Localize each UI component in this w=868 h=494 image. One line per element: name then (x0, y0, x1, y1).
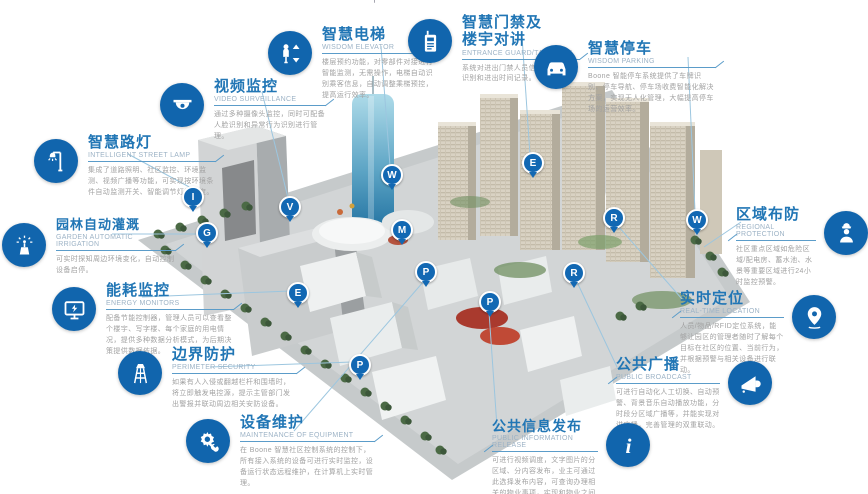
callout-subtitle: PERIMETER SECURITY (172, 364, 297, 371)
street-lamp-icon (34, 139, 78, 183)
callout-underline (106, 309, 234, 310)
callout-subtitle: PUBLIC INFORMATION RELEASE (492, 435, 598, 449)
callout-equipment-maintenance: 设备维护 MAINTENANCE OF EQUIPMENT 在 Boone 智慧… (186, 414, 375, 490)
callout-description: 可实时探知周边环境变化，自动控制设备启停。 (56, 255, 176, 277)
callout-regional-protection: 区域布防 REGIONAL PROTECTION 社区重点区域如危险区域/配电房… (736, 206, 868, 289)
callout-title: 智慧停车 (588, 40, 716, 57)
callout-title: 公共信息发布 (492, 418, 598, 434)
energy-monitor-icon (52, 287, 96, 331)
callout-subtitle: WISDOM PARKING (588, 58, 716, 65)
callout-title: 智慧路灯 (88, 134, 216, 151)
intercom-icon (408, 19, 452, 63)
map-marker-e-8: E (522, 152, 544, 174)
callout-underline (736, 240, 816, 241)
callout-underline (214, 105, 326, 106)
location-pin-icon (792, 295, 836, 339)
callout-title: 实时定位 (680, 290, 784, 307)
callout-description: 可进行视频调度，文字图片的分区域、分内容发布，业主可通过此选择发布内容，可查询办… (492, 456, 598, 494)
callout-subtitle: INTELLIGENT STREET LAMP (88, 152, 216, 159)
map-marker-w-4: W (381, 164, 403, 186)
callout-public-info-release: 公共信息发布 PUBLIC INFORMATION RELEASE 可进行视频调… (492, 418, 650, 494)
callout-subtitle: MAINTENANCE OF EQUIPMENT (240, 432, 375, 439)
map-marker-i-1: I (182, 186, 204, 208)
callout-underline (680, 317, 784, 318)
map-marker-r-9: R (603, 207, 625, 229)
car-icon (534, 45, 578, 89)
callout-title: 区域布防 (736, 206, 816, 223)
callout-description: 社区重点区域如危险区域/配电房、蓄水池、水景等重要区域进行24小时监控预警。 (736, 245, 816, 288)
map-marker-v-3: V (279, 196, 301, 218)
callout-underline (616, 383, 720, 384)
callout-title: 公共广播 (616, 356, 720, 373)
callout-underline (492, 451, 598, 452)
callout-title: 视频监控 (214, 78, 326, 95)
callout-title: 园林自动灌溉 (56, 218, 176, 233)
callout-perimeter-security: 边界防护 PERIMETER SECURITY 如果有人入侵或翻越栏杆和围墙时，… (118, 346, 297, 411)
map-marker-g-2: G (196, 222, 218, 244)
megaphone-icon (728, 361, 772, 405)
callout-underline (56, 250, 176, 251)
callout-wisdom-parking: 智慧停车 WISDOM PARKING Boone 智能停车系统提供了车牌识别、… (534, 40, 716, 116)
map-marker-p-7: P (349, 354, 371, 376)
map-marker-m-5: M (391, 219, 413, 241)
elevator-icon (268, 31, 312, 75)
callout-description: 在 Boone 智慧社区控制系统的控制下，所有接入系统的设备可进行实时监控，设备… (240, 446, 375, 489)
callout-underline (88, 161, 216, 162)
guard-icon (824, 211, 868, 255)
smart-community-diagram: i 丶丶丨丶丶丶 智慧电梯 WISDOM ELEVATOR 楼层预约功能，对零部… (0, 0, 868, 494)
map-marker-r-11: R (563, 262, 585, 284)
callout-subtitle: REGIONAL PROTECTION (736, 224, 816, 238)
callout-description: 如果有人入侵或翻越栏杆和围墙时，将立即触发电控源，提示主管部门发出警报并联动周边… (172, 378, 297, 411)
callout-title: 设备维护 (240, 414, 375, 431)
callout-subtitle: ENERGY MONITORS (106, 300, 234, 307)
callout-underline (172, 373, 297, 374)
callout-description: Boone 智能停车系统提供了车牌识别、停车导航、停车场收费智能化解决方案，实现… (588, 72, 716, 115)
dome-camera-icon (160, 83, 204, 127)
top-edge-text-fragment: 丶丶丨丶丶丶 (300, 0, 700, 3)
callout-subtitle: VIDEO SURVEILLANCE (214, 96, 326, 103)
watchtower-icon (118, 351, 162, 395)
callout-garden-irrigation: 园林自动灌溉 GARDEN AUTOMATIC IRRIGATION 可实时探知… (2, 218, 176, 277)
callout-subtitle: REAL-TIME LOCATION (680, 308, 784, 315)
info-icon (606, 423, 650, 467)
callout-subtitle: PUBLIC BROADCAST (616, 374, 720, 381)
sprinkler-icon (2, 223, 46, 267)
callout-title: 能耗监控 (106, 282, 234, 299)
map-marker-w-10: W (686, 209, 708, 231)
callout-underline (240, 441, 375, 442)
map-marker-p-13: P (479, 291, 501, 313)
map-marker-p-12: P (415, 261, 437, 283)
callout-underline (588, 67, 716, 68)
map-marker-e-6: E (287, 282, 309, 304)
callout-subtitle: GARDEN AUTOMATIC IRRIGATION (56, 234, 176, 248)
gear-wrench-icon (186, 419, 230, 463)
callout-title: 边界防护 (172, 346, 297, 363)
callout-description: 通过多种摄像头监控，同时可配备人脸识别和异常行为识别进行管理。 (214, 110, 326, 143)
